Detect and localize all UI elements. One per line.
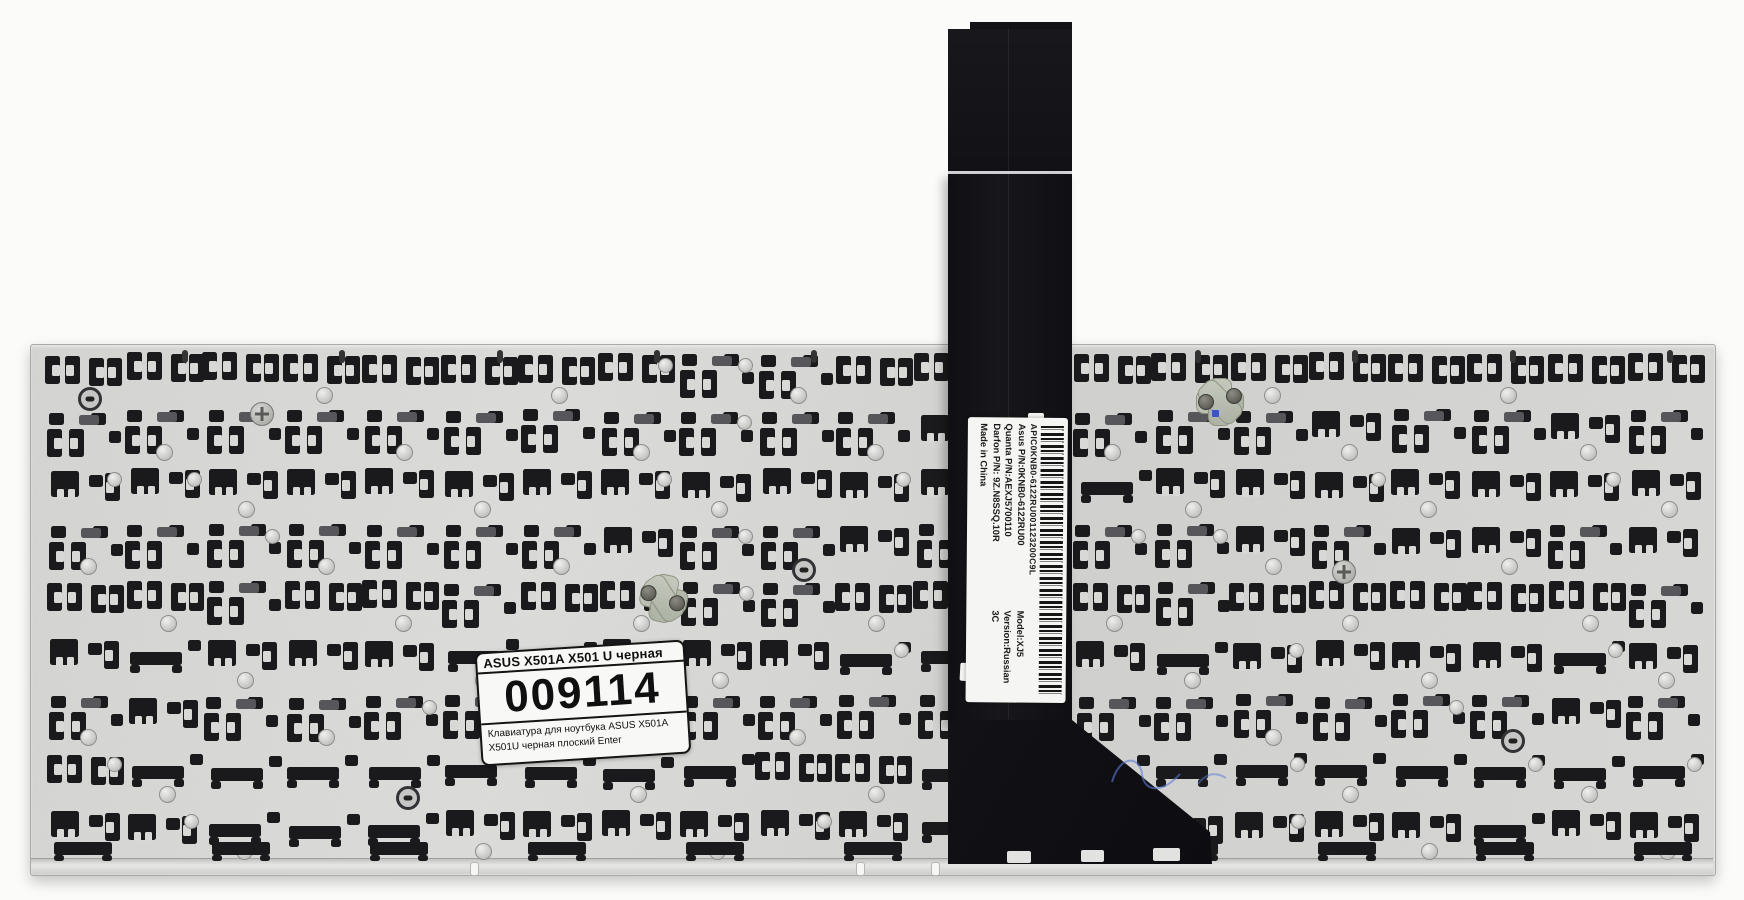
key-clip-notch bbox=[54, 592, 62, 603]
rivet bbox=[265, 529, 280, 544]
key-clip-slot bbox=[397, 412, 417, 422]
key-clip bbox=[484, 814, 498, 826]
key-clip bbox=[801, 472, 815, 484]
key-clip-notch bbox=[1280, 594, 1288, 605]
key-clip bbox=[345, 755, 358, 766]
key-clip-slot bbox=[236, 699, 256, 709]
rivet bbox=[1500, 387, 1517, 404]
key-clip bbox=[603, 782, 613, 790]
key-clip-notch bbox=[1599, 365, 1607, 376]
key-clip bbox=[329, 780, 339, 788]
key-clip-notch bbox=[1241, 719, 1249, 730]
key-clip bbox=[1354, 644, 1368, 656]
key-clip-notch bbox=[1294, 364, 1302, 375]
key-clip bbox=[1631, 584, 1646, 596]
key-clip-notch bbox=[1330, 590, 1338, 601]
product-label: ASUS X501A X501 U черная 009114 Клавиату… bbox=[475, 640, 692, 767]
key-clip-notch bbox=[1399, 434, 1407, 445]
rivet bbox=[107, 472, 122, 487]
version-label: Version:Russian bbox=[1001, 610, 1014, 696]
key-clip-notch bbox=[382, 486, 389, 496]
key-clip-slot bbox=[792, 414, 812, 424]
key-clip bbox=[448, 664, 458, 672]
key-clip bbox=[799, 814, 813, 826]
rivet bbox=[1264, 387, 1281, 404]
rivet bbox=[1131, 529, 1146, 544]
key-clip-notch bbox=[528, 434, 536, 445]
rivet bbox=[422, 700, 437, 715]
key-clip-notch bbox=[1649, 362, 1657, 373]
key-clip-notch bbox=[1679, 364, 1687, 375]
key-clip-slot bbox=[476, 413, 496, 423]
key-clip bbox=[1438, 779, 1448, 787]
plate-bottom-lip bbox=[31, 858, 1713, 874]
key-clip-notch bbox=[265, 363, 273, 374]
key-clip bbox=[664, 430, 676, 442]
key-clip bbox=[584, 543, 596, 555]
key-clip-notch bbox=[1649, 721, 1657, 732]
rivet bbox=[1289, 643, 1304, 658]
key-clip-notch bbox=[1684, 538, 1692, 549]
key-clip-notch bbox=[857, 490, 864, 500]
key-clip bbox=[681, 412, 696, 424]
key-clip bbox=[444, 584, 459, 596]
key-clip-slot bbox=[869, 697, 889, 707]
key-clip-notch bbox=[148, 550, 156, 561]
key-clip-slot bbox=[790, 698, 810, 708]
key-clip-notch bbox=[856, 763, 864, 774]
key-clip-notch bbox=[704, 607, 712, 618]
key-clip-notch bbox=[54, 764, 62, 775]
rivet bbox=[1421, 843, 1438, 860]
key-clip-notch bbox=[1371, 651, 1379, 662]
key-clip-notch bbox=[1408, 487, 1415, 497]
key-clip-notch bbox=[310, 723, 318, 734]
rivet bbox=[396, 444, 413, 461]
key-clip bbox=[899, 713, 911, 725]
key-clip bbox=[524, 525, 539, 537]
key-clip bbox=[132, 766, 184, 779]
key-clip bbox=[1314, 525, 1329, 537]
key-clip-notch bbox=[1558, 828, 1565, 838]
key-clip-notch bbox=[766, 658, 773, 668]
key-clip-notch bbox=[371, 486, 378, 496]
key-clip-notch bbox=[209, 361, 217, 372]
rivet bbox=[396, 786, 420, 810]
key-clip bbox=[684, 779, 694, 787]
key-clip bbox=[1135, 431, 1147, 443]
key-clip-notch bbox=[1320, 722, 1328, 733]
key-clip bbox=[682, 526, 697, 538]
key-clip-notch bbox=[336, 592, 344, 603]
key-clip-notch bbox=[1332, 829, 1339, 839]
key-clip bbox=[743, 714, 755, 726]
key-clip-notch bbox=[225, 658, 232, 668]
key-clip bbox=[445, 765, 497, 778]
key-clip bbox=[166, 818, 180, 830]
key-clip-notch bbox=[1321, 829, 1328, 839]
key-clip bbox=[823, 601, 835, 613]
key-clip-notch bbox=[1606, 424, 1614, 435]
lip-slot bbox=[856, 862, 865, 876]
rivet bbox=[160, 615, 177, 632]
rivet bbox=[238, 501, 255, 518]
key-clip-notch bbox=[1163, 435, 1171, 446]
key-clip bbox=[561, 473, 575, 485]
key-clip bbox=[1278, 778, 1288, 786]
key-clip-notch bbox=[451, 550, 459, 561]
key-clip-notch bbox=[769, 486, 776, 496]
key-clip-notch bbox=[782, 380, 790, 391]
rivet bbox=[318, 729, 335, 746]
key-clip bbox=[403, 472, 417, 484]
key-clip-notch bbox=[856, 829, 863, 839]
key-clip bbox=[820, 714, 832, 726]
key-clip-notch bbox=[894, 822, 902, 833]
key-clip-notch bbox=[1530, 593, 1538, 604]
key-clip-notch bbox=[687, 379, 695, 390]
key-clip bbox=[190, 754, 203, 765]
key-clip-notch bbox=[1242, 544, 1249, 554]
key-clip-notch bbox=[843, 437, 851, 448]
key-clip-notch bbox=[765, 721, 773, 732]
key-clip bbox=[209, 410, 224, 422]
key-clip bbox=[1139, 470, 1152, 481]
key-clip-notch bbox=[899, 367, 907, 378]
key-clip bbox=[347, 428, 359, 440]
phillips-screw-icon bbox=[250, 402, 274, 426]
key-clip-slot bbox=[634, 414, 654, 424]
key-clip bbox=[821, 373, 833, 385]
key-clip-notch bbox=[292, 590, 300, 601]
key-clip bbox=[1590, 702, 1604, 714]
key-clip-notch bbox=[467, 436, 475, 447]
key-clip-notch bbox=[383, 364, 391, 375]
spacebar-bracket bbox=[1476, 842, 1534, 855]
key-clip-slot bbox=[239, 526, 259, 536]
key-clip-notch bbox=[921, 362, 929, 373]
key-clip bbox=[1454, 427, 1466, 439]
label-row-spacer bbox=[976, 610, 989, 696]
key-clip-notch bbox=[1446, 480, 1454, 491]
key-clip bbox=[1199, 667, 1209, 675]
key-clip-slot bbox=[1188, 584, 1208, 594]
key-clip-notch bbox=[1489, 545, 1496, 555]
key-clip bbox=[266, 715, 278, 727]
key-clip-notch bbox=[1415, 434, 1423, 445]
key-clip-notch bbox=[1570, 590, 1578, 601]
key-clip-notch bbox=[572, 593, 580, 604]
key-clip bbox=[269, 428, 281, 440]
key-clip bbox=[1532, 813, 1545, 824]
key-clip-notch bbox=[56, 551, 64, 562]
key-clip bbox=[403, 645, 417, 657]
key-clip-notch bbox=[735, 822, 743, 833]
key-clip-notch bbox=[1518, 593, 1526, 604]
key-clip bbox=[1273, 816, 1287, 828]
key-clip-notch bbox=[1558, 716, 1565, 726]
spacebar-bracket bbox=[686, 855, 696, 861]
key-clip-notch bbox=[230, 435, 238, 446]
key-clip-notch bbox=[920, 590, 928, 601]
key-clip bbox=[604, 412, 619, 424]
key-clip-notch bbox=[106, 822, 114, 833]
key-clip-notch bbox=[699, 490, 706, 500]
spacebar-bracket bbox=[528, 842, 586, 855]
key-clip-notch bbox=[1646, 661, 1653, 671]
cert-code: 3C bbox=[988, 610, 1001, 696]
key-clip-notch bbox=[67, 657, 74, 667]
key-clip-notch bbox=[1080, 438, 1088, 449]
key-clip-notch bbox=[607, 487, 614, 497]
key-clip-notch bbox=[686, 437, 694, 448]
key-clip-notch bbox=[1163, 607, 1171, 618]
key-clip-notch bbox=[1567, 489, 1574, 499]
key-clip bbox=[331, 839, 341, 847]
key-clip-notch bbox=[1360, 592, 1368, 603]
key-clip bbox=[1596, 666, 1606, 674]
key-clip-notch bbox=[178, 592, 186, 603]
rivet bbox=[737, 415, 752, 430]
key-clip-notch bbox=[1474, 363, 1482, 374]
key-clip-slot bbox=[1109, 699, 1129, 709]
key-clip-notch bbox=[767, 437, 775, 448]
key-clip-notch bbox=[1282, 364, 1290, 375]
key-clip bbox=[1075, 525, 1090, 537]
key-clip bbox=[762, 412, 777, 424]
key-clip bbox=[1510, 475, 1524, 487]
key-clip bbox=[88, 643, 102, 655]
key-clip-notch bbox=[388, 550, 396, 561]
key-clip bbox=[325, 473, 339, 485]
key-clip-notch bbox=[1691, 364, 1699, 375]
key-clip-notch bbox=[938, 433, 945, 443]
key-clip bbox=[1315, 778, 1325, 786]
key-clip-notch bbox=[927, 433, 934, 443]
key-clip-notch bbox=[1253, 544, 1260, 554]
key-clip-notch bbox=[545, 550, 553, 561]
key-clip-slot bbox=[397, 527, 417, 537]
key-clip bbox=[838, 412, 853, 424]
key-clip-notch bbox=[306, 658, 313, 668]
key-clip bbox=[426, 714, 438, 726]
key-clip bbox=[246, 644, 260, 656]
rivet bbox=[1658, 672, 1675, 689]
key-clip-notch bbox=[1611, 365, 1619, 376]
key-clip-notch bbox=[1612, 592, 1620, 603]
key-clip bbox=[1375, 715, 1387, 727]
key-clip bbox=[51, 526, 66, 538]
key-clip-notch bbox=[1635, 661, 1642, 671]
key-clip-notch bbox=[371, 721, 379, 732]
key-clip bbox=[253, 781, 263, 789]
key-clip bbox=[130, 665, 140, 673]
key-clip bbox=[639, 473, 653, 485]
key-clip-notch bbox=[1451, 365, 1459, 376]
key-clip-notch bbox=[738, 651, 746, 662]
key-clip-notch bbox=[1569, 828, 1576, 838]
rivet bbox=[738, 529, 753, 544]
key-clip-notch bbox=[845, 829, 852, 839]
key-clip-notch bbox=[504, 366, 512, 377]
screw-mount-bracket bbox=[1186, 372, 1250, 430]
key-clip-notch bbox=[57, 829, 64, 839]
key-clip-slot bbox=[554, 527, 574, 537]
key-clip bbox=[741, 430, 753, 442]
key-clip-notch bbox=[1292, 594, 1300, 605]
key-clip-notch bbox=[857, 365, 865, 376]
key-clip-notch bbox=[1414, 719, 1422, 730]
key-clip-notch bbox=[1398, 830, 1405, 840]
key-clip bbox=[211, 781, 221, 789]
key-clip bbox=[504, 602, 516, 614]
key-clip bbox=[188, 640, 201, 651]
key-clip bbox=[130, 652, 182, 665]
rivet bbox=[107, 757, 122, 772]
key-clip-notch bbox=[68, 592, 76, 603]
key-clip bbox=[642, 531, 656, 543]
key-clip-notch bbox=[105, 650, 113, 661]
key-clip-notch bbox=[348, 592, 356, 603]
key-clip-notch bbox=[346, 365, 354, 376]
key-clip-notch bbox=[190, 592, 198, 603]
key-clip-notch bbox=[1636, 609, 1644, 620]
key-clip-notch bbox=[842, 763, 850, 774]
key-clip-notch bbox=[925, 720, 933, 731]
key-clip-notch bbox=[618, 487, 625, 497]
key-clip-notch bbox=[420, 479, 428, 490]
rivet bbox=[395, 615, 412, 632]
key-clip bbox=[111, 714, 123, 726]
key-clip-notch bbox=[1652, 435, 1660, 446]
rivet bbox=[1184, 672, 1201, 689]
key-clip-notch bbox=[781, 721, 789, 732]
key-clip bbox=[1353, 476, 1367, 488]
key-clip bbox=[763, 526, 778, 538]
key-clip-notch bbox=[382, 659, 389, 669]
key-clip-notch bbox=[1241, 830, 1248, 840]
key-clip-notch bbox=[697, 829, 704, 839]
key-clip-notch bbox=[1556, 590, 1564, 601]
key-clip bbox=[1610, 543, 1622, 555]
key-clip-slot bbox=[1502, 697, 1522, 707]
spacebar-bracket bbox=[370, 842, 428, 855]
key-clip bbox=[1271, 647, 1285, 659]
key-clip-notch bbox=[369, 364, 377, 375]
key-clip-notch bbox=[184, 709, 192, 720]
key-clip-notch bbox=[702, 437, 710, 448]
key-clip bbox=[367, 525, 382, 537]
key-clip-notch bbox=[214, 606, 222, 617]
key-clip-notch bbox=[1409, 660, 1416, 670]
key-clip bbox=[167, 702, 181, 714]
key-clip-notch bbox=[68, 829, 75, 839]
key-clip-slot bbox=[1345, 699, 1365, 709]
plate-slot bbox=[182, 350, 188, 363]
key-clip bbox=[742, 544, 754, 556]
key-clip-notch bbox=[448, 364, 456, 375]
key-clip bbox=[1430, 646, 1444, 658]
key-clip-notch bbox=[1252, 362, 1260, 373]
key-clip-notch bbox=[371, 659, 378, 669]
blue-marker-dot bbox=[1212, 410, 1219, 417]
key-clip bbox=[287, 780, 297, 788]
key-clip-notch bbox=[1479, 435, 1487, 446]
key-clip bbox=[1430, 532, 1444, 544]
key-clip-notch bbox=[859, 437, 867, 448]
key-clip bbox=[798, 644, 812, 656]
key-clip-notch bbox=[1571, 550, 1579, 561]
key-clip-notch bbox=[137, 486, 144, 496]
plate-slot bbox=[654, 350, 660, 363]
key-clip-slot bbox=[711, 414, 731, 424]
key-clip-slot bbox=[396, 698, 416, 708]
key-clip-slot bbox=[793, 585, 813, 595]
key-clip-notch bbox=[887, 367, 895, 378]
key-clip-notch bbox=[860, 720, 868, 731]
key-clip bbox=[840, 654, 892, 667]
key-clip-notch bbox=[214, 549, 222, 560]
key-clip-notch bbox=[625, 437, 633, 448]
rivet bbox=[657, 472, 672, 487]
key-clip-slot bbox=[868, 414, 888, 424]
spacebar-bracket bbox=[212, 842, 270, 855]
key-clip bbox=[287, 767, 339, 780]
key-clip-notch bbox=[148, 361, 156, 372]
plate-slot bbox=[497, 350, 503, 363]
key-clip-slot bbox=[239, 583, 259, 593]
key-clip-slot bbox=[1504, 412, 1524, 422]
key-clip bbox=[922, 782, 932, 790]
key-clip bbox=[1429, 473, 1443, 485]
key-clip bbox=[1612, 756, 1625, 767]
key-clip bbox=[287, 410, 302, 422]
key-clip-slot bbox=[319, 526, 339, 536]
key-clip-notch bbox=[1685, 823, 1693, 834]
key-clip bbox=[289, 524, 304, 536]
key-clip bbox=[1534, 428, 1546, 440]
key-clip-slot bbox=[476, 527, 496, 537]
key-clip-notch bbox=[1607, 821, 1615, 832]
spacebar-bracket bbox=[54, 842, 112, 855]
key-clip bbox=[209, 824, 261, 837]
key-clip-notch bbox=[1162, 549, 1170, 560]
spacebar-bracket bbox=[418, 855, 428, 861]
key-clip-notch bbox=[1329, 429, 1336, 439]
key-clip-notch bbox=[146, 716, 153, 726]
key-clip-notch bbox=[214, 435, 222, 446]
key-clip bbox=[369, 780, 379, 788]
key-clip bbox=[426, 813, 439, 824]
key-clip-notch bbox=[178, 363, 186, 374]
key-clip bbox=[640, 814, 654, 826]
key-clip-notch bbox=[1687, 481, 1695, 492]
rivet bbox=[867, 444, 884, 461]
key-clip-slot bbox=[713, 584, 733, 594]
key-clip-notch bbox=[1527, 538, 1535, 549]
rivet bbox=[868, 615, 885, 632]
key-clip-notch bbox=[1177, 722, 1185, 733]
screw-icon bbox=[1226, 388, 1242, 404]
key-clip bbox=[878, 530, 892, 542]
key-clip-notch bbox=[1447, 653, 1455, 664]
key-clip bbox=[1550, 525, 1565, 537]
handwriting-mark bbox=[1100, 742, 1250, 806]
key-clip bbox=[1589, 417, 1603, 429]
key-clip bbox=[269, 756, 282, 767]
rivet bbox=[1341, 444, 1358, 461]
key-clip bbox=[1157, 524, 1172, 536]
